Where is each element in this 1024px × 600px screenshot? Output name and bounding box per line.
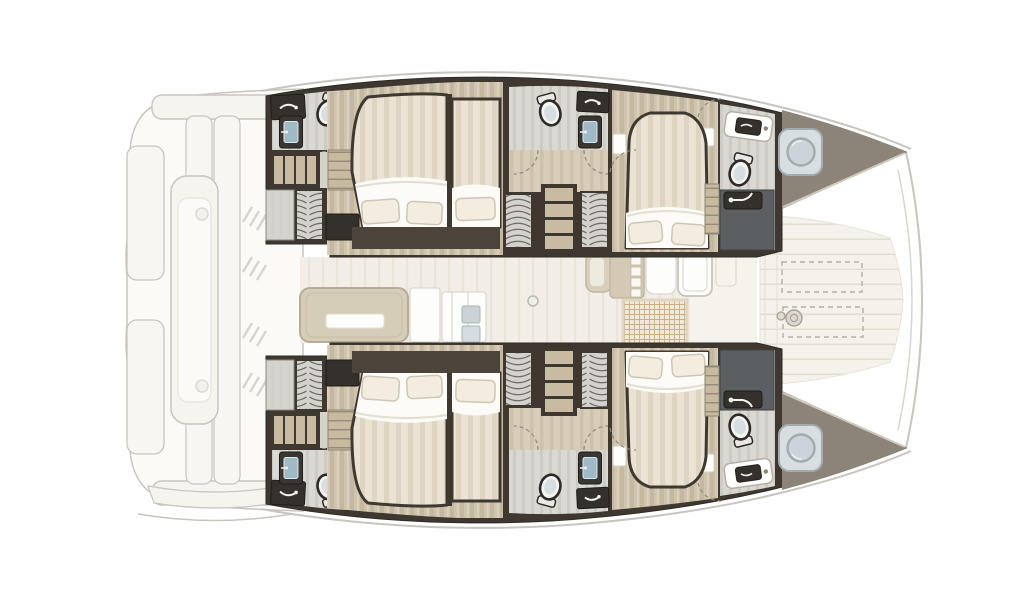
windlass-gypsy: [777, 312, 785, 320]
catamaran-floor-plan-stage: [0, 0, 1024, 600]
deck-fitting: [196, 208, 208, 220]
windlass: [786, 310, 802, 326]
bow-crossbeam-outline: [906, 152, 922, 448]
catamaran-floor-plan: [0, 0, 1024, 600]
table-leg-mount: [528, 296, 538, 306]
sofa-table: [326, 314, 384, 328]
cockpit-grid-mat: [623, 300, 687, 346]
saloon: [300, 250, 757, 346]
galley-unit: [410, 288, 440, 342]
aft-platform-edge: [138, 514, 292, 521]
cockpit-seat-cushion: [590, 258, 604, 286]
swim-platform-pod: [127, 146, 164, 280]
cockpit-lounge: [646, 252, 676, 294]
deck-fitting: [196, 380, 208, 392]
cockpit-bench-cushion: [178, 198, 211, 402]
swim-platform-pod: [127, 320, 164, 454]
galley-sink: [462, 306, 480, 323]
galley-cooktop: [462, 326, 480, 342]
